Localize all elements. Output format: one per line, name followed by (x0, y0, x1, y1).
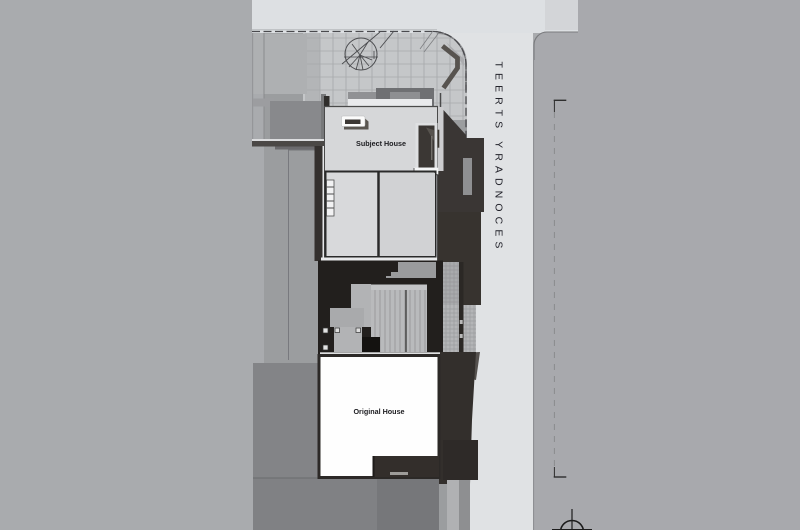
svg-text:TEERTS YRADNOCES: TEERTS YRADNOCES (493, 61, 505, 253)
svg-text:Original House: Original House (353, 407, 404, 416)
svg-text:Subject House: Subject House (356, 139, 406, 148)
